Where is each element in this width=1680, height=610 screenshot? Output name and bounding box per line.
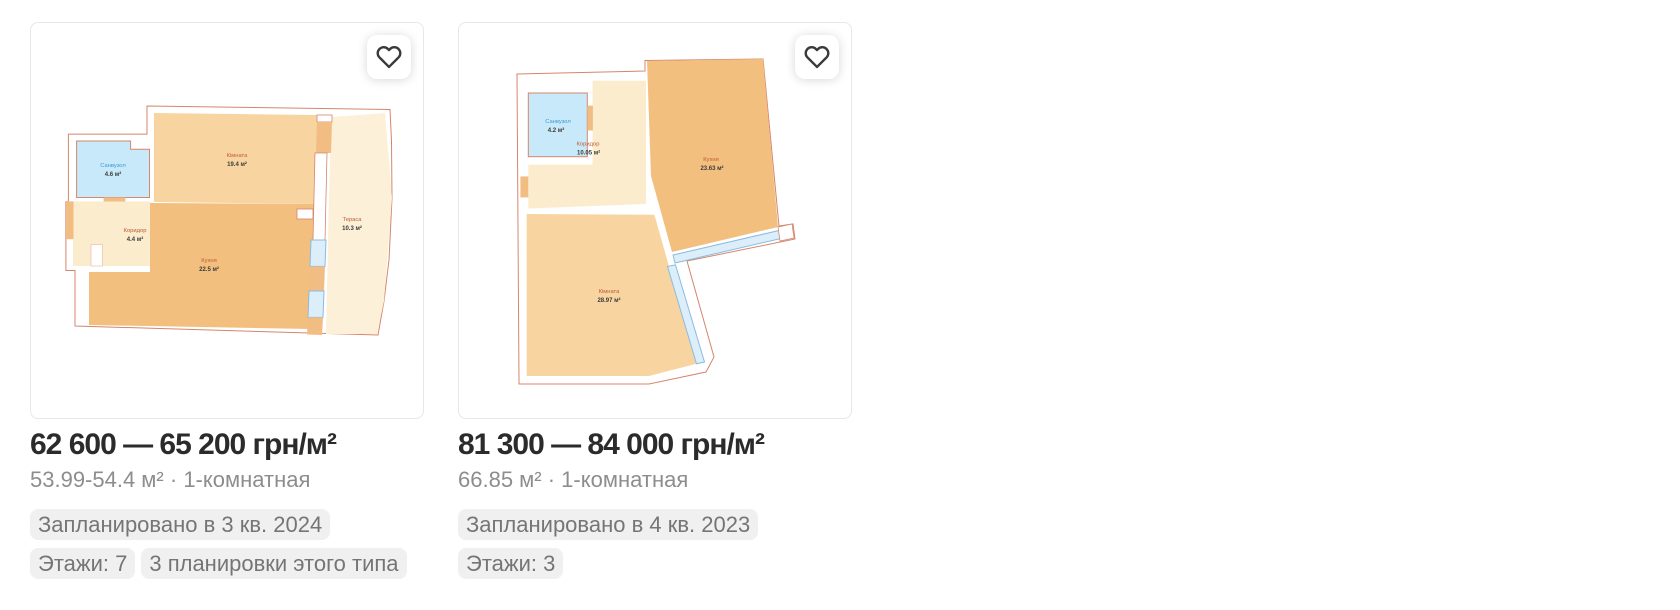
svg-text:10.3 м²: 10.3 м² bbox=[342, 225, 362, 232]
svg-text:4.6 м²: 4.6 м² bbox=[105, 171, 121, 178]
svg-text:4.2 м²: 4.2 м² bbox=[548, 127, 564, 134]
svg-text:Кімната: Кімната bbox=[227, 153, 249, 159]
svg-text:4.4 м²: 4.4 м² bbox=[127, 236, 143, 243]
svg-text:Коридор: Коридор bbox=[577, 142, 600, 148]
svg-text:Кухня: Кухня bbox=[201, 258, 217, 264]
svg-text:Санвузол: Санвузол bbox=[545, 119, 571, 125]
svg-text:22.5 м²: 22.5 м² bbox=[199, 266, 219, 273]
svg-text:Тераса: Тераса bbox=[342, 217, 362, 223]
svg-text:19.4 м²: 19.4 м² bbox=[227, 161, 247, 168]
svg-text:Санвузол: Санвузол bbox=[100, 163, 126, 169]
svg-text:Кімната: Кімната bbox=[599, 289, 621, 295]
svg-text:23.63 м²: 23.63 м² bbox=[700, 165, 723, 172]
svg-text:28.97 м²: 28.97 м² bbox=[597, 297, 620, 304]
svg-text:Кухня: Кухня bbox=[703, 157, 719, 163]
svg-text:Коридор: Коридор bbox=[124, 228, 147, 234]
svg-text:10.05 м²: 10.05 м² bbox=[577, 150, 600, 157]
